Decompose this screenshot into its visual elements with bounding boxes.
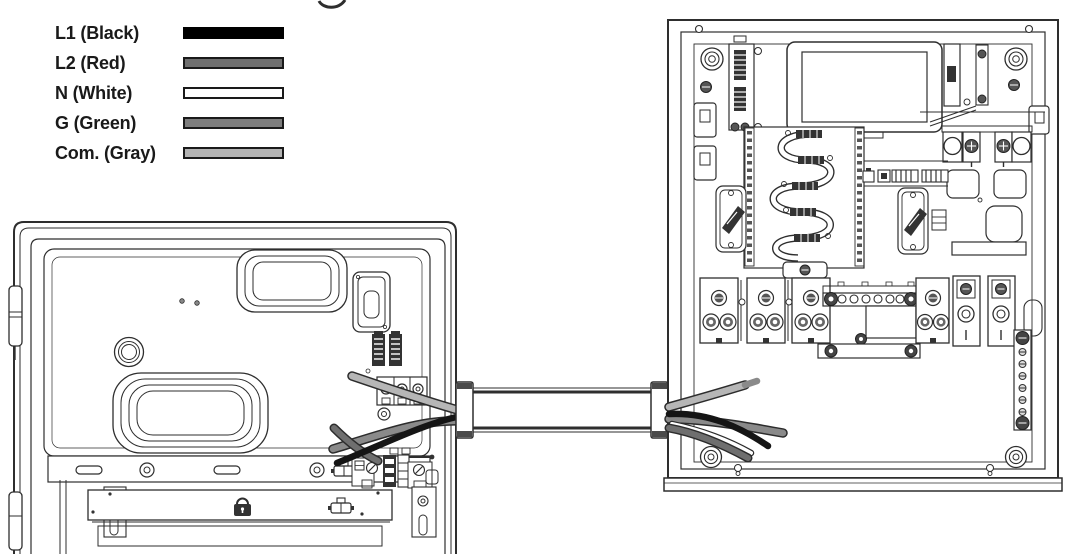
conduit-flange-left xyxy=(456,382,473,438)
rounded-knockout xyxy=(986,206,1022,242)
diagram-canvas xyxy=(0,0,1069,554)
handle-knockout xyxy=(237,250,347,312)
right-enclosure xyxy=(664,20,1062,491)
shelf-bracket xyxy=(952,242,1026,255)
terminal-block xyxy=(700,278,738,343)
terminal-block xyxy=(916,278,949,343)
mount-hole xyxy=(1026,26,1033,33)
wire-com-tip xyxy=(745,381,757,385)
mount-hole xyxy=(696,26,703,33)
rivet-dot xyxy=(180,299,185,304)
display-screen xyxy=(787,42,942,138)
conduit xyxy=(456,382,668,438)
wiring-diagram-page: L1 (Black) L2 (Red) N (White) G (Green) … xyxy=(0,0,1069,554)
rivet-dot xyxy=(195,301,200,306)
ground-bar xyxy=(1014,330,1031,430)
base-plate xyxy=(664,478,1062,491)
racetrack-knockout xyxy=(113,373,268,453)
junction-box xyxy=(353,272,390,332)
left-enclosure xyxy=(9,222,461,554)
cropped-text-fragment xyxy=(319,0,345,7)
door-hinge-bottom xyxy=(9,492,22,550)
terminal-block xyxy=(747,278,785,343)
lug-terminal-tall xyxy=(988,276,1015,346)
terminal-block xyxy=(792,278,830,343)
relay-left xyxy=(716,186,746,252)
serpentine-busbar xyxy=(744,127,864,278)
round-knockout xyxy=(115,338,144,367)
lug-terminal-tall xyxy=(953,276,980,346)
